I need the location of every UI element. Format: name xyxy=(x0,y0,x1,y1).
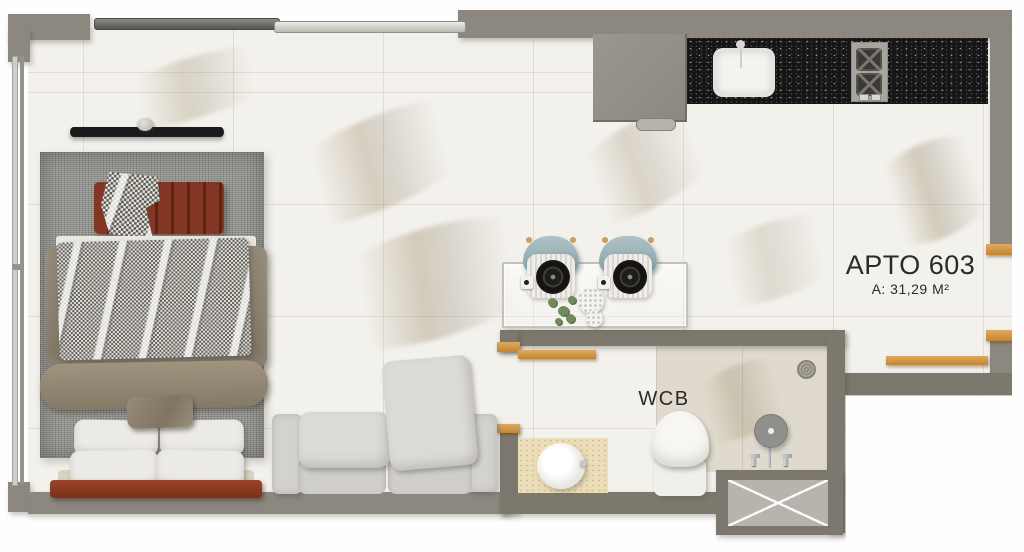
chair-side-box xyxy=(598,276,610,289)
sofa-back-cushion xyxy=(381,354,478,471)
cooktop-knob xyxy=(859,94,869,101)
kitchen-sink-icon xyxy=(713,48,775,97)
chair-side-box xyxy=(521,276,533,289)
sliding-window-panel xyxy=(274,21,466,33)
floor-plan-apto-603: APTO 603 A: 31,29 M² WCB xyxy=(0,0,1024,552)
wall-right-upper xyxy=(990,30,1012,246)
faucet-cap xyxy=(780,454,792,458)
entry-door-frame-bottom xyxy=(986,330,1014,341)
plant-icon xyxy=(546,292,612,328)
bathroom-door-frame-bottom xyxy=(497,424,520,433)
chair-knob xyxy=(648,237,654,243)
chair-knob xyxy=(570,237,576,243)
shower-faucet-icon xyxy=(746,454,762,468)
cooktop-knob xyxy=(871,94,881,101)
chair-knob xyxy=(602,237,608,243)
side-window-inner-frame xyxy=(20,56,24,484)
refrigerator-handle xyxy=(636,118,676,131)
vanity-faucet-icon xyxy=(580,460,587,467)
leaf xyxy=(548,298,557,307)
leaf xyxy=(568,296,576,304)
tv-mount xyxy=(137,118,153,131)
shower-head-center xyxy=(768,428,774,434)
bathroom-door-frame-top xyxy=(497,342,520,352)
bed-throw xyxy=(56,238,251,361)
entry-door-frame-top xyxy=(986,244,1014,255)
shower-head-icon xyxy=(754,414,788,448)
burner-icon xyxy=(856,73,882,96)
sliding-window-icon xyxy=(94,18,280,30)
shower-faucet-icon xyxy=(778,454,794,468)
chair-side-dot xyxy=(524,280,529,285)
chair-side-dot xyxy=(601,280,606,285)
wall-left-bottom-stub xyxy=(8,482,30,512)
entry-door-icon xyxy=(886,356,988,365)
burner-icon xyxy=(856,48,882,71)
unit-label: APTO 603 xyxy=(838,250,983,281)
chair-knob xyxy=(526,237,532,243)
wall-entry-bottom xyxy=(845,373,1012,395)
leaf xyxy=(555,318,562,325)
sofa-back-cushion xyxy=(299,412,389,468)
bathroom-label: WCB xyxy=(628,388,700,411)
service-shaft-icon xyxy=(716,470,843,535)
wall-bathroom-top xyxy=(500,330,845,346)
outside-edge-mask xyxy=(1012,0,1024,552)
side-window-icon xyxy=(12,56,18,486)
faucet-cap xyxy=(748,454,760,458)
dining-chair-icon xyxy=(523,236,579,298)
outside-area-mask xyxy=(846,396,1024,552)
area-label: A: 31,29 M² xyxy=(838,281,983,297)
flower-pom xyxy=(586,310,603,327)
service-shaft-cross xyxy=(728,480,828,526)
refrigerator-icon xyxy=(593,34,687,122)
dining-chair-icon xyxy=(599,236,657,298)
bathroom-door-icon xyxy=(518,350,596,359)
leaf xyxy=(566,314,575,323)
wall-right-lower-stub xyxy=(990,338,1012,378)
wall-top xyxy=(458,10,1012,38)
headboard-icon xyxy=(50,480,262,498)
cooktop-icon xyxy=(851,42,888,102)
kitchen-faucet-icon xyxy=(736,40,745,49)
bed-accent-pillow xyxy=(126,395,193,429)
floor-drain-icon xyxy=(797,360,816,379)
kitchen-faucet-stem xyxy=(740,46,742,68)
vanity-sink-icon xyxy=(537,443,585,489)
chair-cushion xyxy=(613,260,647,294)
chair-cushion xyxy=(536,260,570,294)
side-window-mullion xyxy=(12,264,24,270)
